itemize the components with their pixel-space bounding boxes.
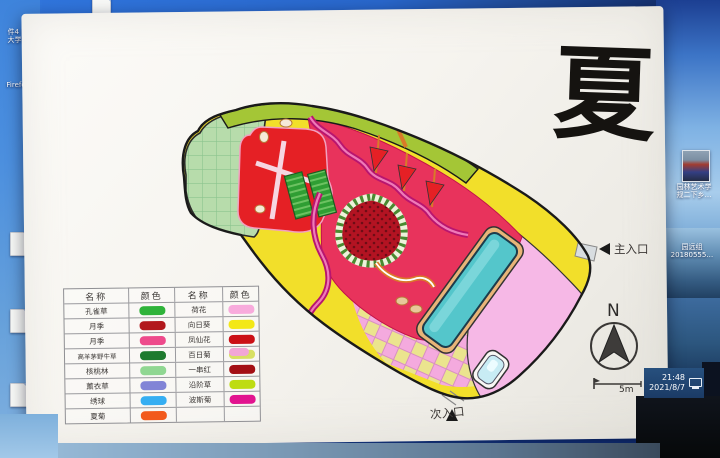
legend-row: 绣球 波斯菊: [66, 391, 260, 409]
checker-plaza: [348, 143, 580, 387]
scale-bar: 5m: [589, 373, 649, 393]
legend-row: 夏菊: [66, 406, 260, 424]
color-swatch-overlay: [228, 347, 248, 355]
legend-header-row: 名称 颜色 名称 颜色: [64, 287, 258, 304]
clock-date: 2021/8/7: [649, 383, 685, 393]
svg-text:5m: 5m: [619, 385, 634, 393]
picture-folder-icon[interactable]: [447, 192, 466, 208]
legend-row: 孔雀草 荷花: [64, 301, 258, 319]
document-icon[interactable]: [10, 383, 29, 407]
document-icon[interactable]: [258, 116, 277, 140]
pink-garden-area: [467, 203, 584, 399]
desktop-background: W 件4 西 大学家 Firefox 园林艺术学 规二下乡… PDF 园远组 2…: [0, 0, 720, 458]
icon-label: 园林艺术学 规二下乡…: [666, 183, 720, 199]
color-swatch: [139, 305, 165, 314]
taskbar-edge: [702, 362, 720, 398]
monitor-bezel-corner: [636, 396, 720, 458]
hedge-band: [220, 103, 478, 183]
word-logo-icon: W: [529, 211, 541, 222]
svg-text:N: N: [607, 301, 620, 321]
color-swatch: [140, 410, 166, 419]
document-icon[interactable]: [10, 232, 29, 256]
legend-row: 高羊茅野牛草 百日菊: [65, 346, 259, 364]
color-swatch: [140, 380, 166, 389]
color-swatch: [140, 365, 166, 374]
flower-beds: [284, 166, 336, 223]
legend-header-color: 颜色: [222, 287, 258, 302]
secondary-entrance-label: 次入口: [429, 403, 465, 423]
word-document-icon[interactable]: W: [527, 206, 549, 227]
document-icon[interactable]: [231, 92, 250, 116]
desktop-bottom-left: [0, 414, 58, 458]
color-swatch: [140, 395, 166, 404]
taskbar-clock[interactable]: 21:48 2021/8/7: [644, 368, 704, 398]
color-swatch: [229, 364, 255, 373]
color-swatch: [139, 350, 165, 359]
garden-trail: [376, 125, 434, 287]
lotus-pond: [339, 197, 404, 264]
arrow-up-icon: [446, 390, 458, 409]
legend-header-name: 名称: [64, 288, 128, 303]
legend-row: 核桃林 一串红: [65, 361, 259, 379]
icon-label: 件4 西 大学家: [0, 28, 38, 44]
desktop-bottom-strip: [0, 443, 660, 458]
image-file-icon[interactable]: [682, 150, 710, 182]
desktop-sea-photo: [656, 228, 720, 298]
document-icon[interactable]: [127, 20, 146, 44]
legend-header-color: 颜色: [128, 288, 174, 303]
compass-north-arrow: N: [583, 300, 645, 374]
rose-flower-field: [308, 117, 522, 340]
red-plaza: [238, 127, 332, 232]
color-swatch: [228, 304, 254, 313]
pavilion: [470, 347, 512, 391]
legend-row: 月季 向日葵: [64, 316, 258, 334]
legend-header-name: 名称: [174, 287, 222, 302]
legend-row: 月季 凤仙花: [65, 331, 259, 349]
garden-stones: [255, 119, 422, 313]
main-entrance-label: 主入口: [599, 241, 649, 257]
secondary-entrance-stub: [442, 391, 464, 405]
season-title: 夏: [546, 34, 662, 166]
document-icon[interactable]: [92, 0, 111, 20]
tray-monitor-icon[interactable]: [689, 378, 702, 389]
document-icon[interactable]: [291, 140, 310, 164]
tree-area: [185, 111, 266, 237]
document-icon[interactable]: [10, 309, 29, 333]
main-entrance-stub: [575, 243, 597, 261]
legend-row: 薰衣草 沿阶草: [65, 376, 259, 394]
icon-label: Firefox: [0, 81, 38, 89]
color-swatch: [228, 334, 254, 343]
color-swatch: [139, 320, 165, 329]
arrow-left-icon: [599, 243, 610, 255]
document-icon[interactable]: [404, 164, 423, 188]
color-swatch: [229, 409, 255, 418]
icon-label: 园远组 20180555…: [664, 243, 720, 259]
walking-path: [306, 117, 468, 387]
clock-time: 21:48: [649, 373, 685, 383]
document-icon[interactable]: [162, 44, 181, 68]
document-icon[interactable]: [197, 68, 216, 92]
color-swatch: [228, 319, 254, 328]
color-swatch: [139, 335, 165, 344]
color-swatch: [229, 379, 255, 388]
color-swatch: [229, 394, 255, 403]
legend-table: 名称 颜色 名称 颜色 孔雀草 荷花 月季 向日葵 月季 凤仙花 高羊茅野牛草 …: [63, 286, 261, 425]
pool: [413, 223, 527, 357]
color-swatch: [228, 349, 254, 358]
